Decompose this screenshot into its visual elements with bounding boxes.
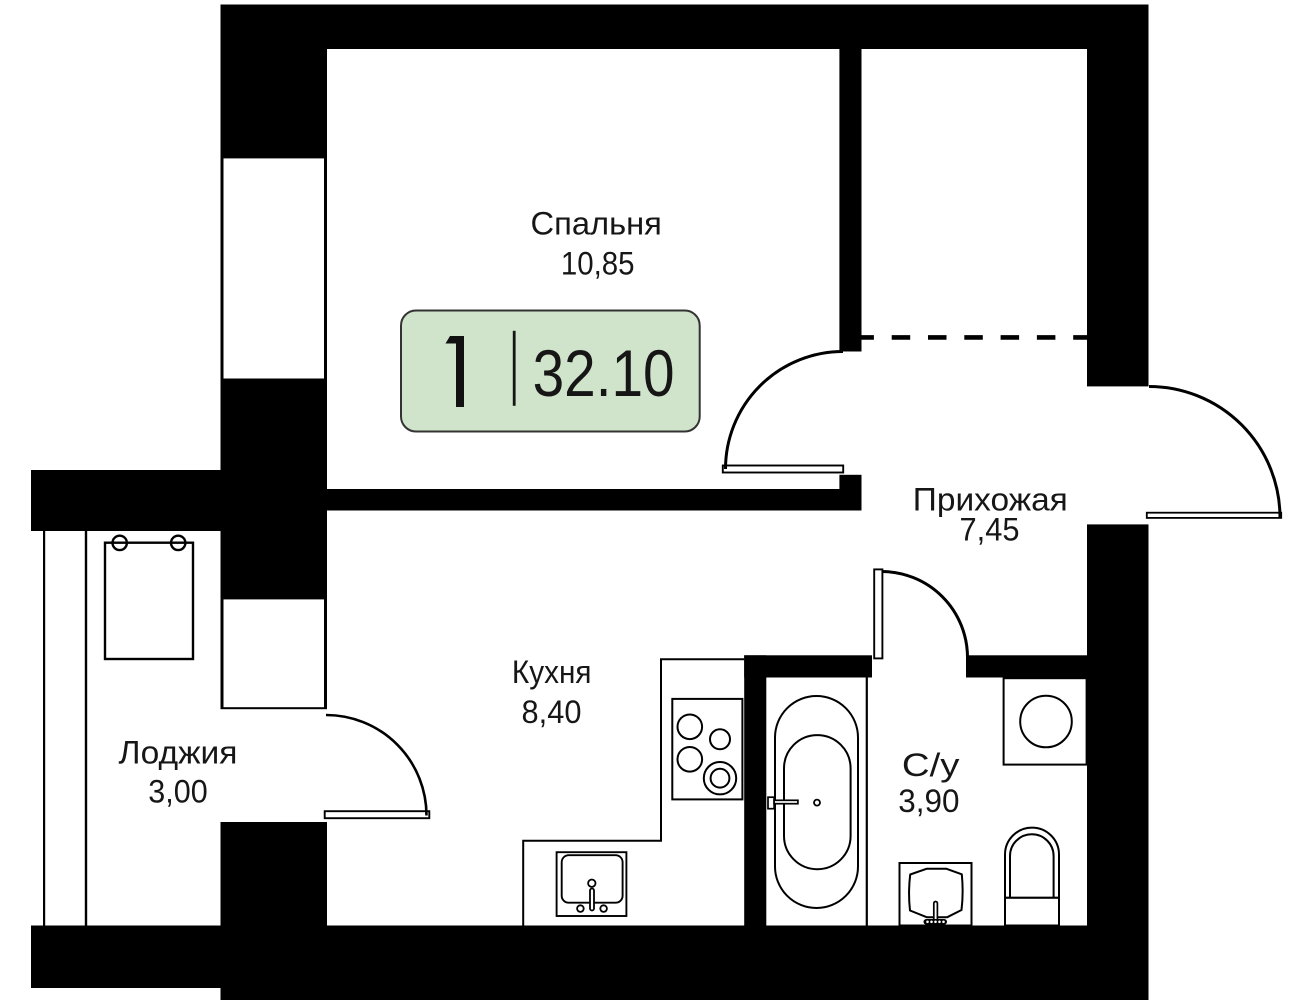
svg-text:Лоджия: Лоджия: [119, 734, 238, 770]
svg-text:32.10: 32.10: [533, 336, 675, 410]
svg-text:7,45: 7,45: [960, 511, 1020, 547]
svg-text:С/у: С/у: [902, 747, 960, 783]
svg-text:3,90: 3,90: [898, 783, 959, 819]
svg-text:10,85: 10,85: [561, 245, 635, 281]
svg-text:8,40: 8,40: [522, 694, 582, 730]
svg-text:Спальня: Спальня: [531, 205, 662, 241]
svg-text:3,00: 3,00: [148, 773, 207, 809]
svg-text:Кухня: Кухня: [512, 654, 592, 690]
